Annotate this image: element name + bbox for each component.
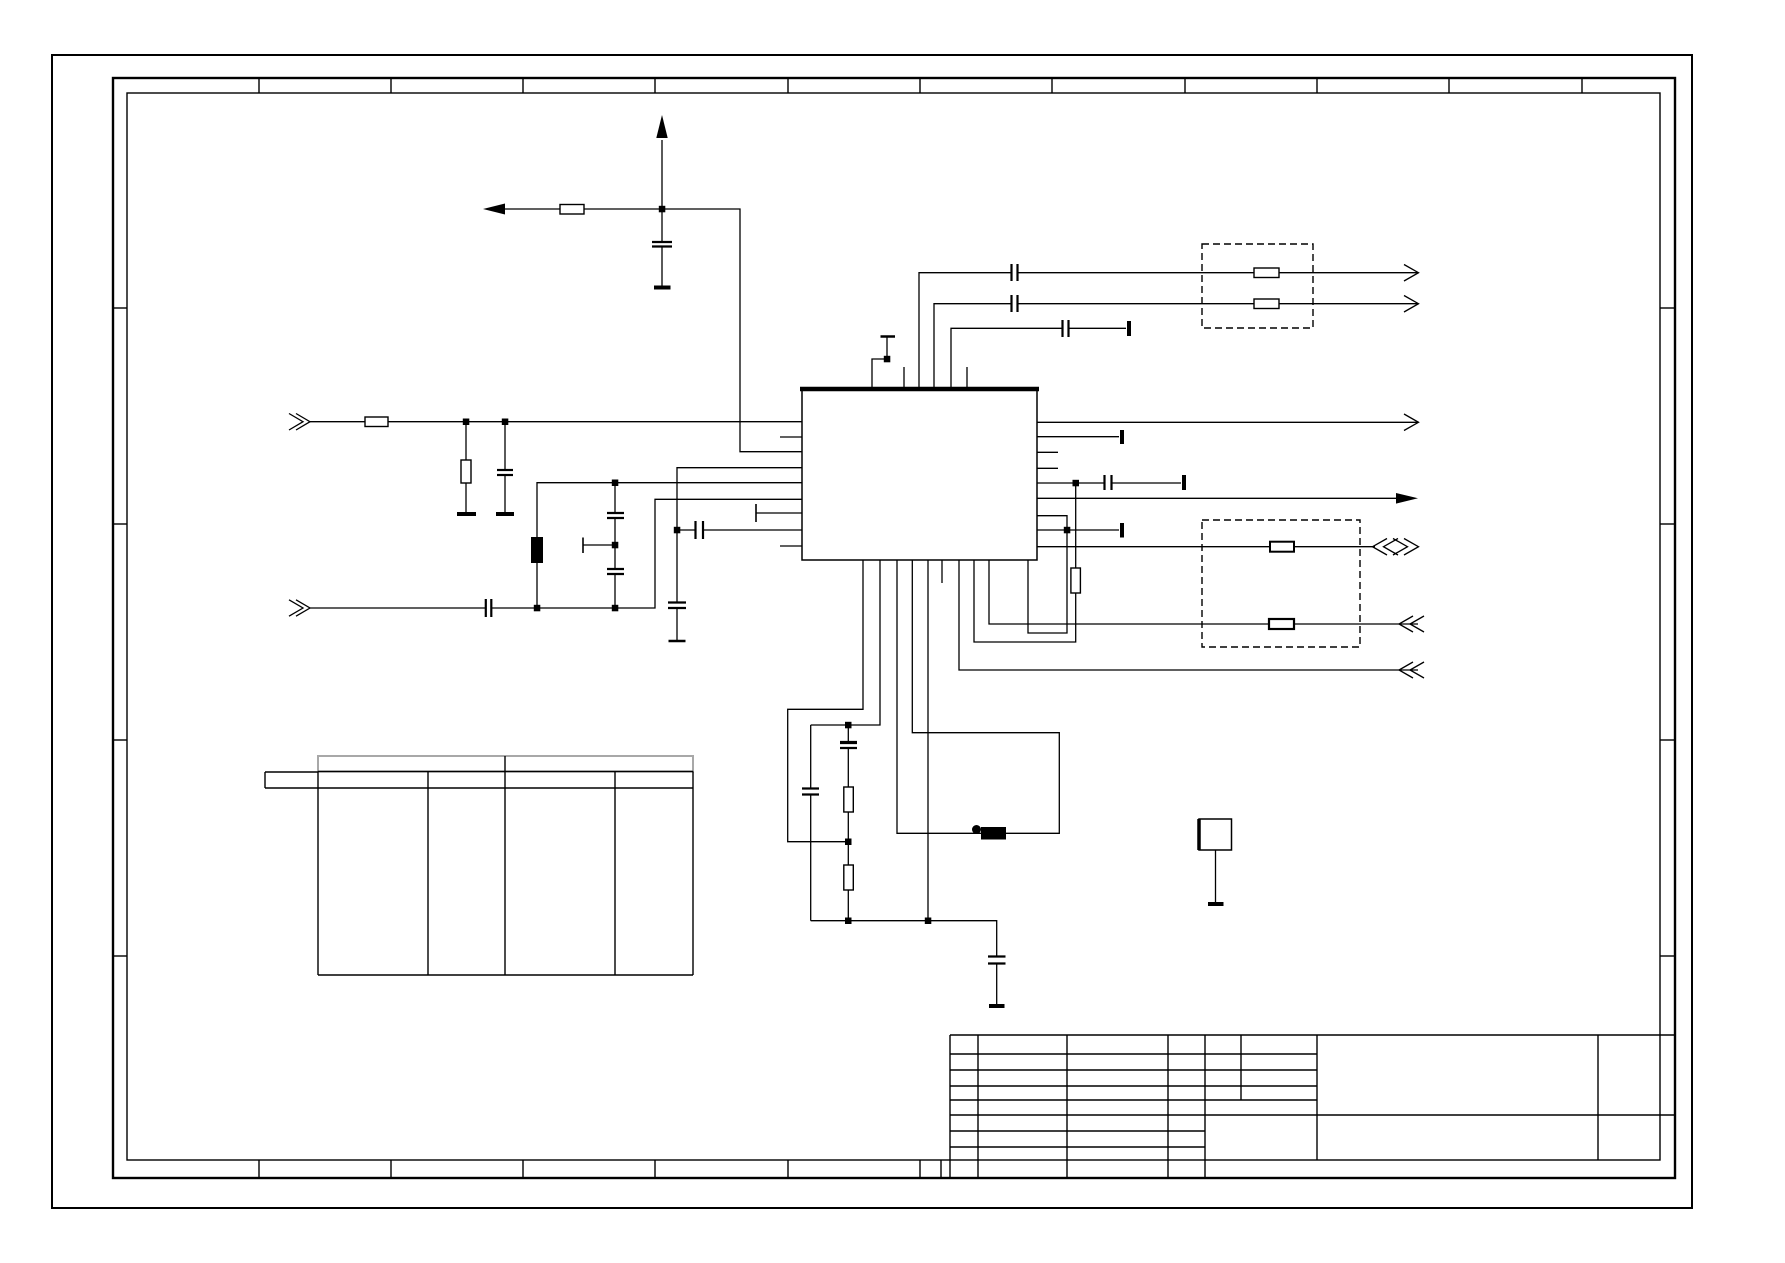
junction-dot — [1073, 480, 1080, 487]
resistor — [844, 865, 854, 890]
dashed-connector-box — [1202, 244, 1313, 328]
wire-bead-a — [897, 560, 981, 833]
wire-vcc-rail — [495, 209, 802, 452]
resistor — [560, 205, 584, 215]
wire-bot-880 — [811, 560, 880, 725]
wire-out-624 — [989, 560, 1418, 624]
wire-bead-b — [912, 560, 1059, 833]
wire-out272-a — [919, 273, 1011, 389]
ferrite-bead — [532, 538, 543, 563]
resistor — [1270, 542, 1294, 552]
junction-dot — [1064, 527, 1071, 534]
wire-ferrite-top — [537, 483, 802, 538]
wire-out328-a — [951, 328, 1062, 389]
junction-dot — [463, 419, 470, 426]
arrow-left-filled — [483, 204, 505, 215]
resistor — [365, 417, 388, 427]
junction-dot — [612, 480, 619, 487]
schematic-sheet — [0, 0, 1785, 1263]
junction-dot — [845, 722, 852, 729]
junction-dot — [659, 206, 666, 213]
wire-top-872 — [872, 359, 887, 389]
chevron-bidirectional — [1393, 539, 1408, 556]
inner-border — [127, 93, 1660, 1160]
polarity-dot — [972, 825, 981, 834]
junction-dot — [612, 605, 619, 612]
junction-dot — [925, 918, 932, 925]
resistor — [461, 460, 471, 483]
junction-dot — [612, 542, 619, 549]
power-arrow-up — [656, 115, 667, 138]
junction-dot — [534, 605, 541, 612]
wire-gnd-rail — [811, 921, 997, 956]
junction-dot — [845, 918, 852, 925]
arrow-right-filled — [1396, 493, 1418, 504]
schematic-canvas — [0, 0, 1785, 1263]
junction-dot — [845, 839, 852, 846]
chevron-bidirectional — [1384, 539, 1399, 556]
junction-dot — [674, 527, 681, 534]
resistor — [1254, 268, 1279, 278]
resistor — [1269, 619, 1294, 629]
resistor — [844, 787, 854, 812]
ferrite-bead — [982, 828, 1006, 840]
wire-out303-a — [934, 304, 1011, 389]
component-square — [1199, 819, 1232, 850]
resistor — [1254, 299, 1279, 309]
middle-border — [113, 78, 1675, 1178]
junction-dot — [884, 356, 891, 363]
wire-pin-515 — [1037, 516, 1067, 530]
resistor — [1071, 568, 1081, 593]
ic-body — [802, 389, 1037, 560]
junction-dot — [502, 419, 509, 426]
